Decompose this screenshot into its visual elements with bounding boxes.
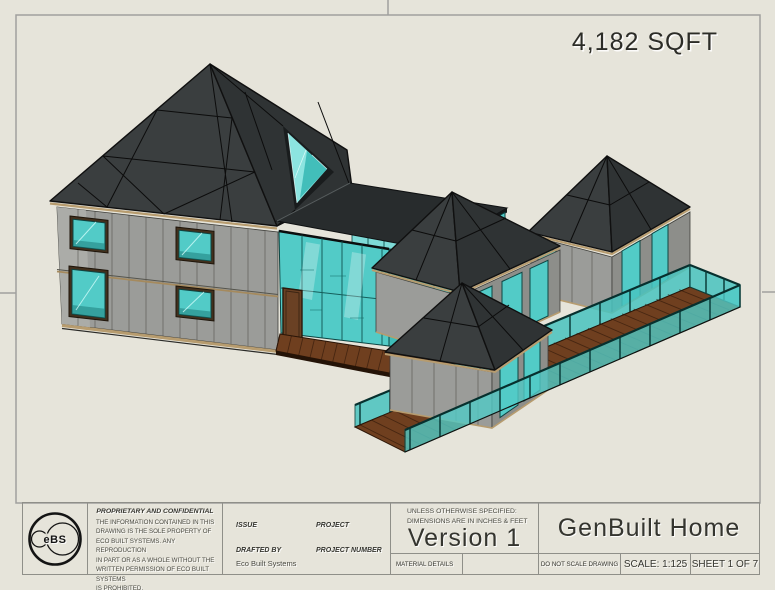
version-title: Version 1	[391, 524, 538, 553]
issue-label: ISSUE	[236, 522, 257, 529]
issue-cell: ISSUE PROJECT DRAFTED BY Eco Built Syste…	[223, 503, 391, 574]
drawing-title-cell: GenBuilt Home DO NOT SCALE DRAWING SCALE…	[539, 503, 759, 574]
logo-text: eBS	[44, 534, 67, 546]
material-details-value	[463, 554, 538, 574]
project-label: PROJECT	[316, 522, 349, 529]
proprietary-title: PROPRIETARY AND CONFIDENTIAL	[88, 508, 222, 515]
sheet-number-label: SHEET 1 OF 7	[691, 554, 759, 574]
version-cell: UNLESS OTHERWISE SPECIFIED: DIMENSIONS A…	[391, 503, 539, 574]
title-block: eBS PROPRIETARY AND CONFIDENTIAL THE INF…	[22, 502, 760, 575]
proprietary-cell: PROPRIETARY AND CONFIDENTIAL THE INFORMA…	[88, 503, 223, 574]
company-logo: eBS	[23, 503, 88, 574]
scale-label: SCALE: 1:125	[621, 554, 691, 574]
drafted-by-label: DRAFTED BY	[236, 547, 281, 554]
project-number-label: PROJECT NUMBER	[316, 547, 382, 554]
spec-note-line1: UNLESS OTHERWISE SPECIFIED:	[407, 507, 527, 517]
drawing-title: GenBuilt Home	[558, 514, 741, 543]
proprietary-body: THE INFORMATION CONTAINED IN THIS DRAWIN…	[88, 518, 222, 590]
drawing-sheet: 4,182 SQFT eBS PROPRIETARY AND CONFIDENT…	[0, 0, 775, 590]
do-not-scale-label: DO NOT SCALE DRAWING	[539, 554, 621, 574]
material-details-label: MATERIAL DETAILS	[391, 554, 463, 574]
drafted-by-value: Eco Built Systems	[236, 559, 316, 568]
house-render	[50, 64, 740, 452]
area-label: 4,182 SQFT	[572, 28, 718, 57]
ebs-logo-icon: eBS	[26, 508, 84, 570]
